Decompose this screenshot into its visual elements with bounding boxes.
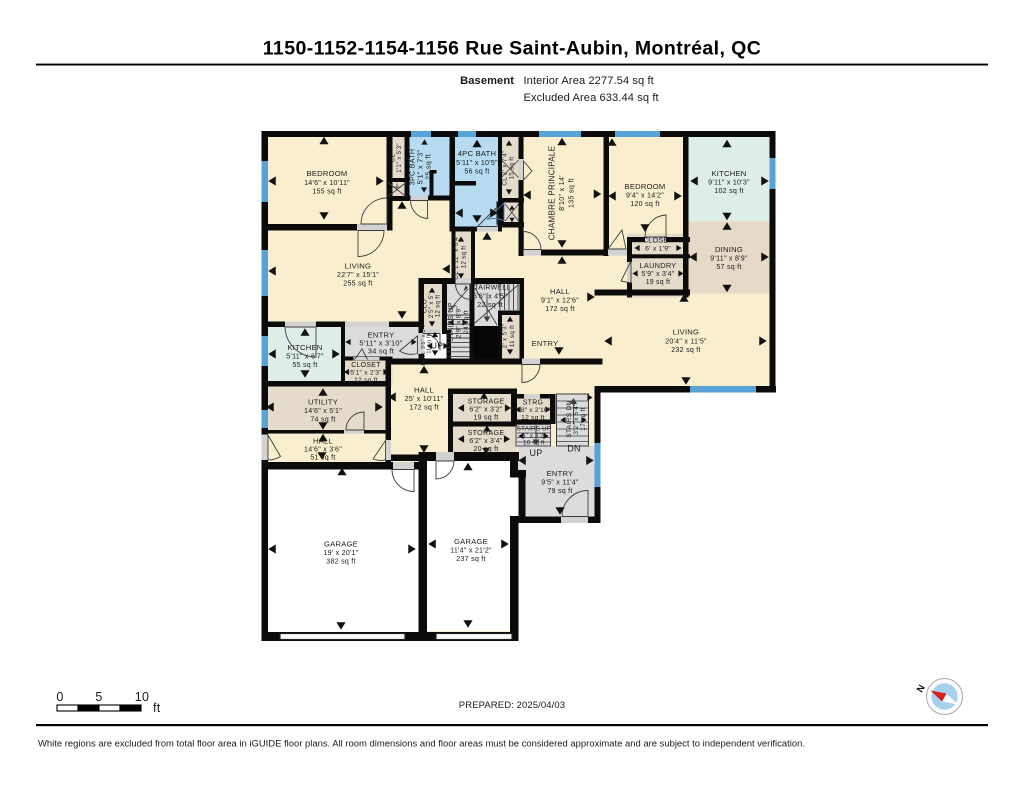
svg-text:12 sq ft: 12 sq ft (521, 415, 545, 422)
svg-text:22'7" x 15'1": 22'7" x 15'1" (337, 271, 379, 279)
svg-text:DINING: DINING (715, 245, 743, 254)
svg-text:19 sq ft: 19 sq ft (474, 415, 499, 422)
svg-text:120 sq ft: 120 sq ft (630, 200, 659, 208)
svg-text:BEDROOM: BEDROOM (625, 182, 666, 191)
svg-text:11 sq ft: 11 sq ft (509, 325, 516, 347)
svg-text:172 sq ft: 172 sq ft (409, 404, 438, 412)
svg-text:57 sq ft: 57 sq ft (716, 263, 741, 271)
svg-text:STORAGE: STORAGE (468, 428, 505, 437)
svg-text:255 sq ft: 255 sq ft (343, 280, 372, 288)
svg-text:LAUNDRY: LAUNDRY (640, 261, 677, 270)
svg-text:172 sq ft: 172 sq ft (545, 305, 574, 313)
svg-text:6" x 3'2": 6" x 3'2" (522, 434, 546, 440)
svg-text:UP: UP (529, 448, 542, 458)
svg-text:10: 10 (135, 690, 149, 704)
svg-text:STRG: STRG (523, 400, 543, 407)
svg-text:CL 1'11" x 6'4": CL 1'11" x 6'4" (453, 234, 460, 279)
svg-text:9'11" x 10'3": 9'11" x 10'3" (708, 179, 750, 187)
svg-text:14'6" x 10'11": 14'6" x 10'11" (304, 179, 350, 187)
svg-text:11 sq ft: 11 sq ft (427, 334, 433, 353)
svg-text:12 sq ft: 12 sq ft (354, 377, 378, 384)
svg-text:5'9" x 3'4": 5'9" x 3'4" (642, 271, 675, 278)
svg-text:9'4" x 14'2": 9'4" x 14'2" (626, 192, 664, 200)
svg-text:9'1" x 12'6": 9'1" x 12'6" (541, 297, 579, 305)
svg-text:19 sq ft: 19 sq ft (646, 279, 671, 286)
svg-text:STAIRS UP: STAIRS UP (517, 426, 551, 433)
svg-text:17 sq ft: 17 sq ft (580, 407, 587, 430)
svg-text:DN: DN (567, 444, 581, 454)
svg-text:BEDROOM: BEDROOM (307, 169, 348, 178)
svg-text:232 sq ft: 232 sq ft (671, 346, 700, 354)
svg-text:STAIRS UP: STAIRS UP (448, 302, 455, 341)
svg-text:6'2" x 3'4": 6'2" x 3'4" (469, 438, 503, 445)
svg-text:4PC BATH: 4PC BATH (458, 149, 497, 158)
svg-text:55 sq ft: 55 sq ft (292, 361, 317, 369)
svg-text:102 sq ft: 102 sq ft (714, 187, 743, 195)
svg-text:3'2" x 5'4": 3'2" x 5'4" (573, 403, 580, 434)
svg-text:8'10" x 14': 8'10" x 14' (558, 175, 566, 211)
svg-text:5: 5 (95, 690, 102, 704)
svg-text:5'11" x 6'7": 5'11" x 6'7" (286, 353, 324, 361)
svg-text:ENTRY: ENTRY (547, 469, 574, 478)
svg-text:11'4" x 21'2": 11'4" x 21'2" (450, 547, 492, 555)
svg-text:0: 0 (56, 690, 63, 704)
svg-text:HALL: HALL (414, 386, 434, 395)
svg-text:UP: UP (431, 341, 443, 351)
svg-text:CL 2' x 7'4": CL 2' x 7'4" (502, 150, 509, 185)
svg-text:12 sq ft: 12 sq ft (461, 246, 468, 269)
svg-text:51 sq ft: 51 sq ft (310, 454, 335, 462)
svg-text:19' x 20'1": 19' x 20'1" (323, 549, 358, 557)
svg-text:14'6" x 5'1": 14'6" x 5'1" (304, 407, 342, 415)
svg-text:5'11" x 10'5": 5'11" x 10'5" (456, 159, 498, 167)
svg-text:CL: CL (390, 153, 397, 162)
svg-text:CHAMBRE PRINCIPALE: CHAMBRE PRINCIPALE (548, 146, 557, 241)
svg-text:CLOSET: CLOSET (643, 236, 674, 245)
svg-text:237 sq ft: 237 sq ft (456, 555, 485, 563)
svg-text:KITCHEN: KITCHEN (711, 169, 746, 178)
svg-text:15 sq ft: 15 sq ft (509, 157, 516, 180)
svg-text:GARAGE: GARAGE (454, 537, 488, 546)
svg-text:White regions are excluded fro: White regions are excluded from total fl… (38, 739, 805, 750)
svg-text:2' x 5'3": 2' x 5'3" (502, 324, 509, 349)
svg-text:135 sq ft: 135 sq ft (568, 178, 576, 208)
svg-text:6'2" x 3'2": 6'2" x 3'2" (469, 407, 503, 414)
svg-text:1'1" x 5'3": 1'1" x 5'3" (397, 143, 403, 173)
svg-text:14'6" x 3'6": 14'6" x 3'6" (304, 446, 342, 454)
svg-text:UTILITY: UTILITY (308, 398, 338, 407)
svg-text:ENTRY: ENTRY (532, 339, 559, 348)
svg-text:20'4" x 11'5": 20'4" x 11'5" (665, 338, 707, 346)
svg-text:STAIRS DN: STAIRS DN (566, 400, 573, 437)
svg-text:LIVING: LIVING (345, 262, 371, 271)
svg-text:Basement: Basement (460, 75, 514, 87)
svg-text:Interior Area 2277.54 sq ft: Interior Area 2277.54 sq ft (524, 75, 654, 87)
svg-text:34 sq ft: 34 sq ft (368, 347, 394, 356)
svg-text:5'1" x 2'3": 5'1" x 2'3" (350, 370, 382, 377)
svg-text:LIVING: LIVING (673, 328, 699, 337)
svg-text:1150-1152-1154-1156 Rue Saint-: 1150-1152-1154-1156 Rue Saint-Aubin, Mon… (263, 38, 762, 60)
svg-text:2'9" x 8'9": 2'9" x 8'9" (456, 306, 463, 338)
svg-text:12 sq ft: 12 sq ft (435, 295, 442, 318)
svg-text:PREPARED: 2025/04/03: PREPARED: 2025/04/03 (459, 700, 565, 711)
svg-text:9'11" x 8'9": 9'11" x 8'9" (710, 255, 748, 263)
svg-text:20 sq ft: 20 sq ft (474, 446, 499, 453)
svg-text:79 sq ft: 79 sq ft (547, 487, 572, 495)
svg-text:24 sq ft: 24 sq ft (463, 310, 470, 334)
svg-text:Excluded Area 633.44 sq ft: Excluded Area 633.44 sq ft (524, 92, 659, 104)
svg-text:155 sq ft: 155 sq ft (312, 188, 341, 196)
svg-text:74 sq ft: 74 sq ft (310, 416, 335, 424)
svg-text:HALL: HALL (550, 287, 570, 296)
svg-text:10 sq ft: 10 sq ft (523, 441, 545, 447)
svg-text:6' x 1'9": 6' x 1'9" (645, 246, 671, 253)
svg-text:25 sq ft: 25 sq ft (424, 154, 433, 180)
svg-text:56 sq ft: 56 sq ft (464, 168, 489, 176)
svg-text:KITCHEN: KITCHEN (287, 343, 322, 352)
svg-text:HALL: HALL (313, 437, 333, 446)
svg-text:25' x 10'11": 25' x 10'11" (405, 395, 444, 403)
svg-text:9'5" x 11'4": 9'5" x 11'4" (541, 479, 579, 487)
svg-text:22 sq ft: 22 sq ft (477, 300, 503, 309)
svg-text:382 sq ft: 382 sq ft (326, 558, 355, 566)
svg-text:STAIRWELL: STAIRWELL (469, 285, 510, 292)
svg-text:STORAGE: STORAGE (468, 397, 505, 406)
svg-text:CLOSET: CLOSET (351, 362, 381, 369)
svg-text:4'8" x 2'10": 4'8" x 2'10" (516, 407, 551, 414)
svg-text:ft: ft (153, 701, 161, 715)
svg-text:GARAGE: GARAGE (324, 540, 358, 549)
